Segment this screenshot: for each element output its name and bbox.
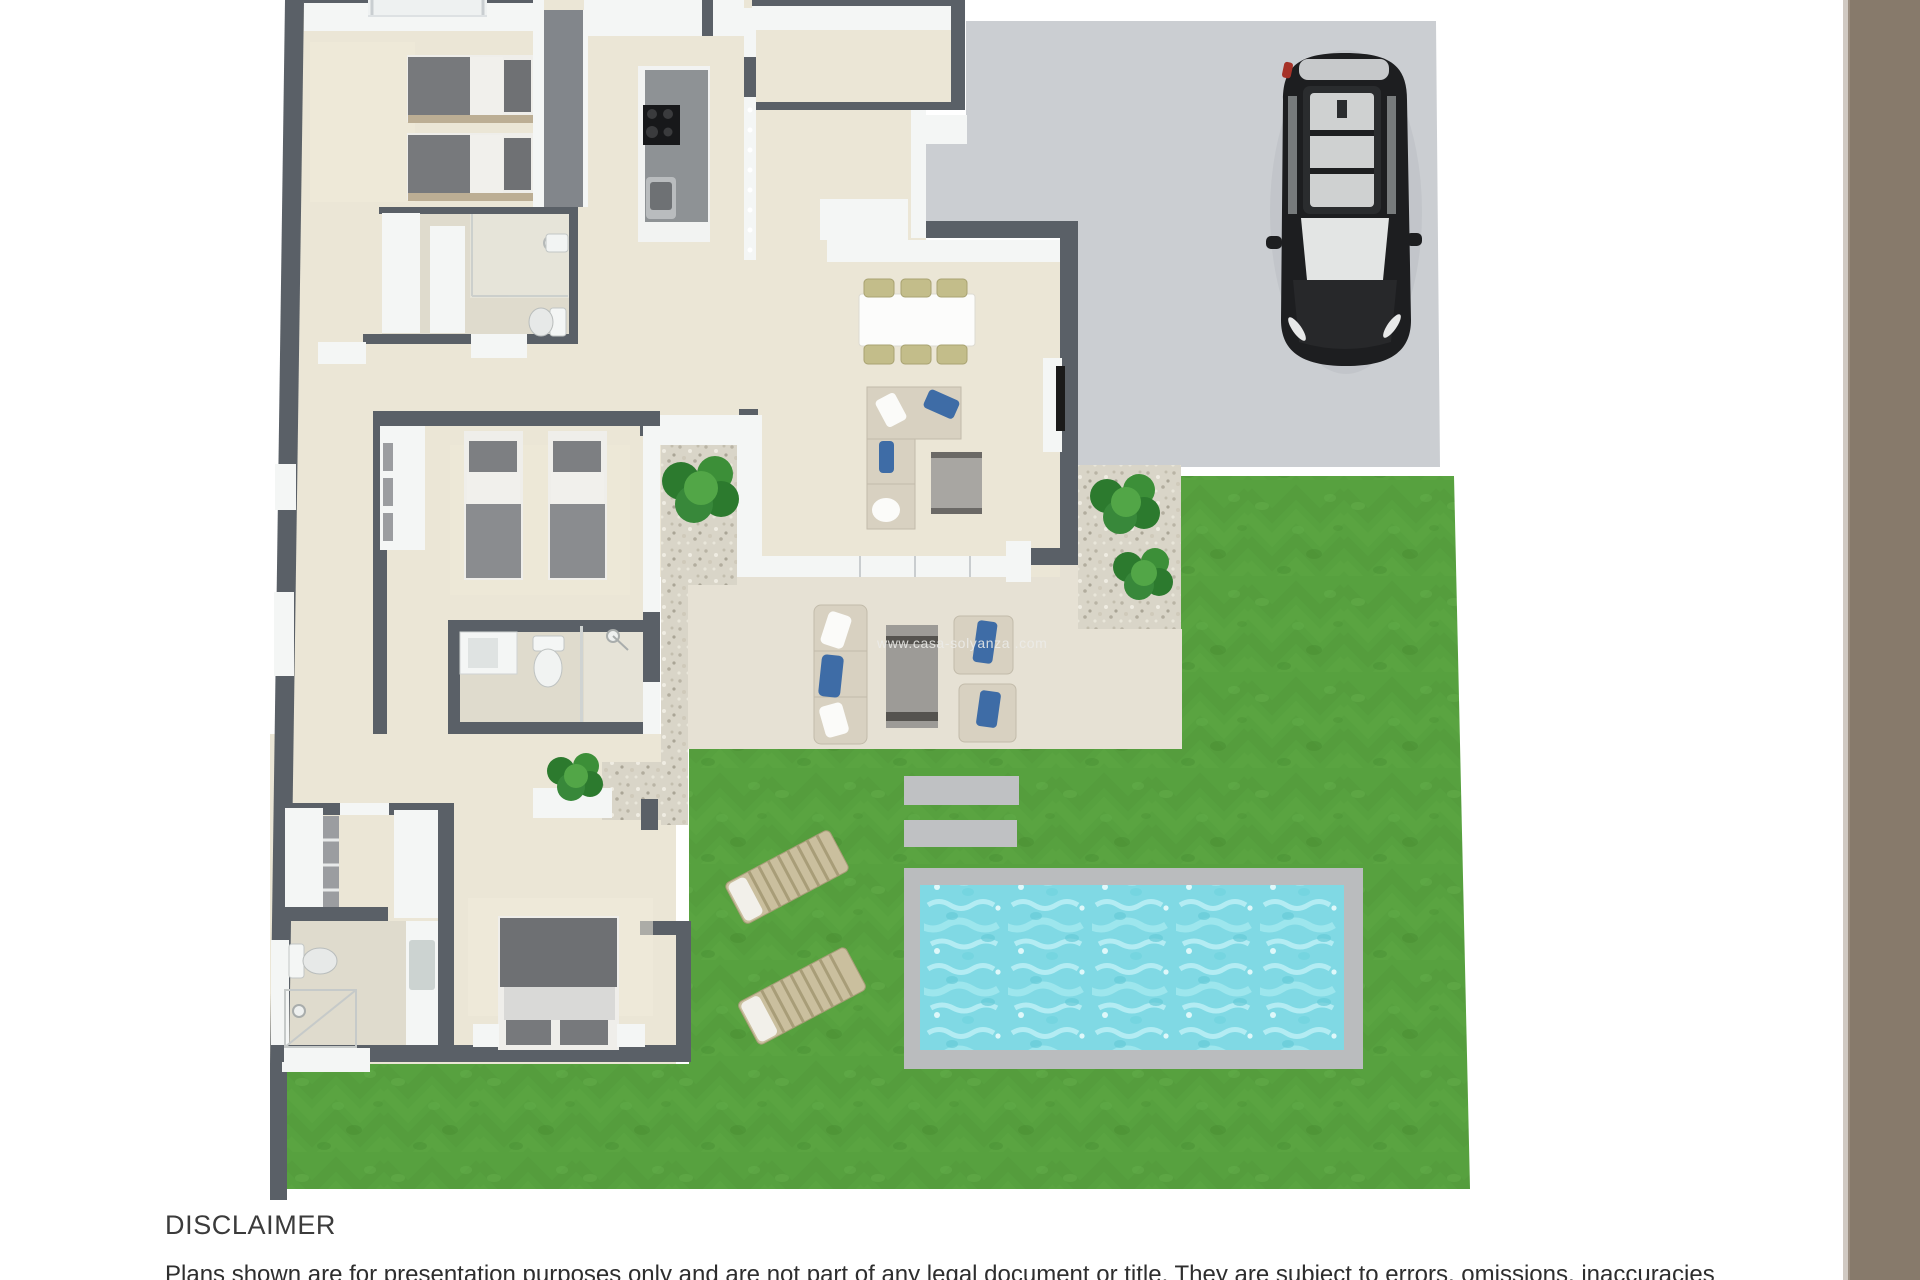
svg-text:www.casa-solyanza .com: www.casa-solyanza .com <box>876 635 1047 651</box>
